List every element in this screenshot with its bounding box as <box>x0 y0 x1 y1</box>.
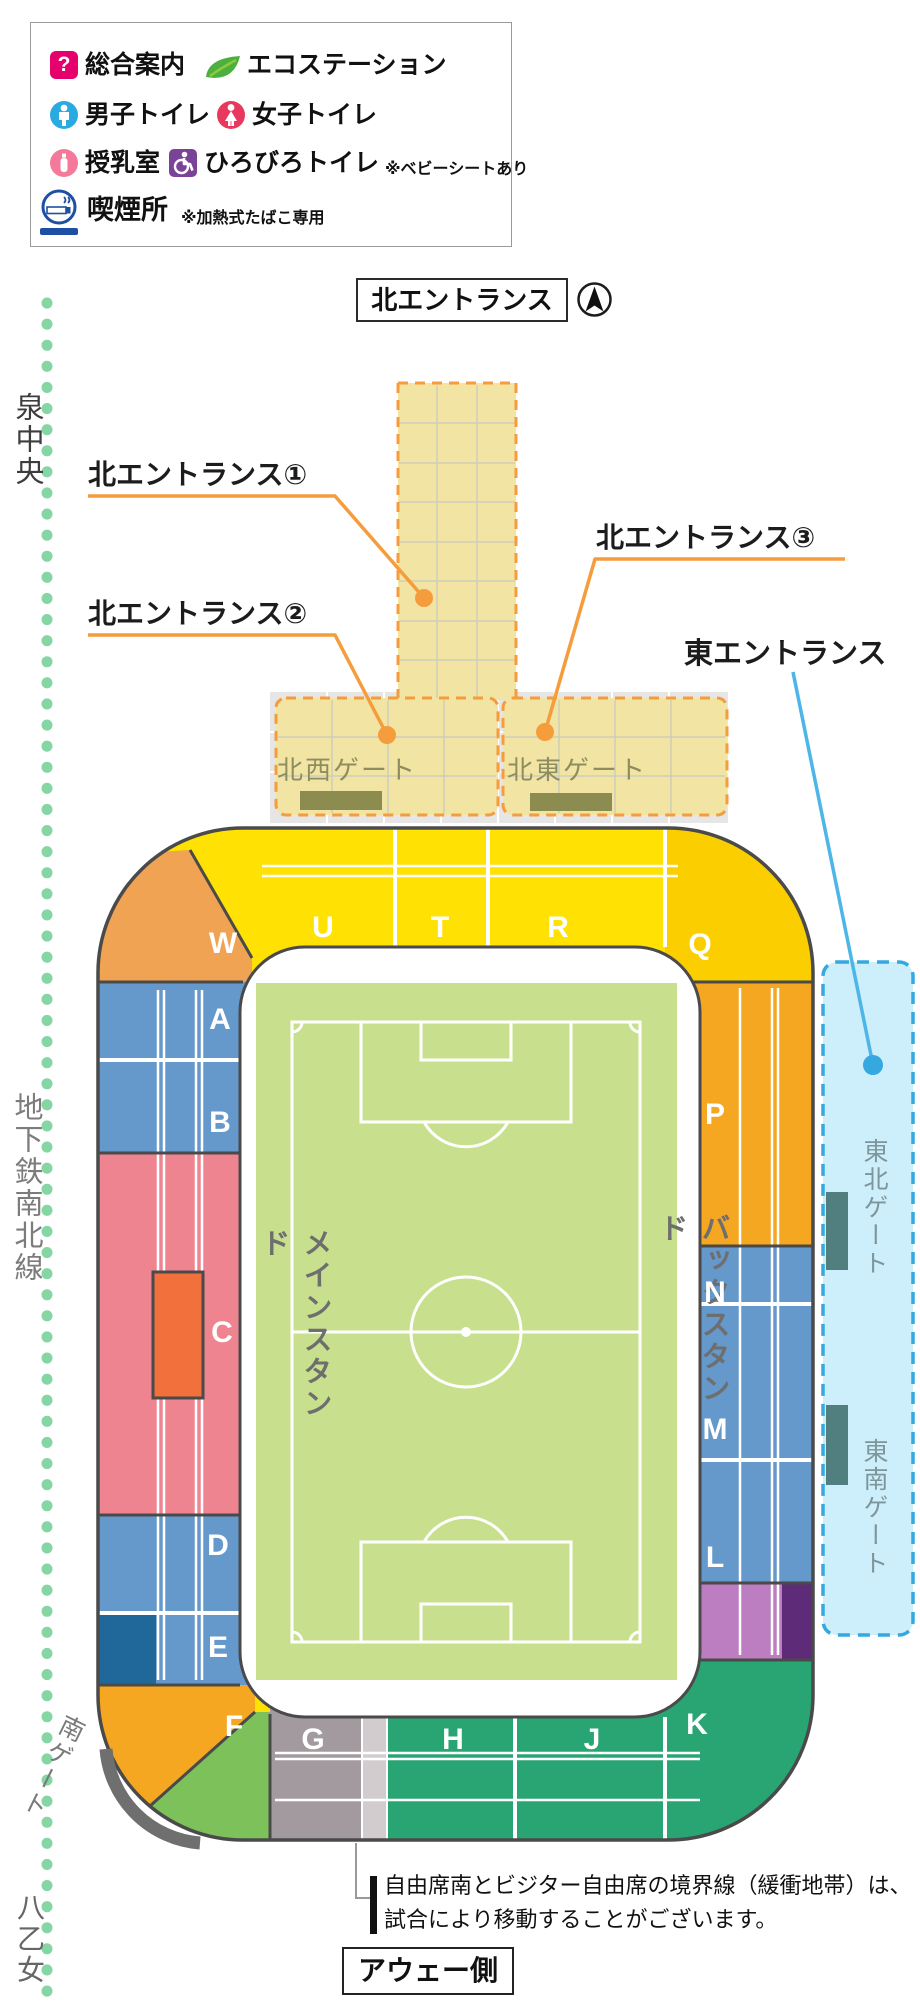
east-south-gate-bar <box>826 1405 848 1485</box>
label-north-entrance-2: 北エントランス② <box>88 592 307 632</box>
label-back-stand: バックスタンド <box>650 1213 734 1428</box>
legend-box: ? 総合案内 エコステーション 男子トイレ 女子トイレ 授乳室 ひろびろトイレ … <box>30 22 512 247</box>
section-label-q: Q <box>688 928 711 962</box>
male-icon <box>50 101 78 129</box>
label-north-entrance-3: 北エントランス③ <box>596 516 815 556</box>
legend-female-label: 女子トイレ <box>252 100 377 130</box>
female-icon <box>217 101 245 129</box>
section-purple-light <box>690 1583 782 1660</box>
northeast-gate-bar <box>530 793 612 811</box>
section-label-d: D <box>207 1529 229 1563</box>
label-north-entrance-1: 北エントランス① <box>88 453 307 493</box>
legend-male-label: 男子トイレ <box>85 100 210 130</box>
smoking-icon <box>37 187 85 237</box>
section-e-outer <box>90 1613 156 1685</box>
legend-nursing-label: 授乳室 <box>85 148 160 178</box>
label-subway-line: 地下鉄南北線 <box>5 1092 47 1302</box>
section-label-t: T <box>431 911 449 945</box>
label-main-stand: メインスタンド <box>252 1228 336 1443</box>
legend-smoking-label: 喫煙所 <box>87 195 168 225</box>
nursing-icon <box>50 149 78 177</box>
section-label-c: C <box>211 1316 233 1350</box>
note-connector <box>356 1843 377 1934</box>
east-north-gate-bar <box>826 1192 848 1270</box>
section-label-n: N <box>704 1276 726 1310</box>
vip-seats-box <box>153 1272 203 1398</box>
section-label-h: H <box>442 1723 464 1757</box>
section-label-l: L <box>706 1541 724 1575</box>
section-label-g: G <box>301 1723 324 1757</box>
leaf-icon <box>203 51 243 79</box>
north-corridor <box>398 383 516 700</box>
label-station-yaotome: 八乙女 <box>9 1893 49 2003</box>
section-label-u: U <box>312 911 334 945</box>
section-label-j: J <box>584 1723 601 1757</box>
label-east-entrance: 東エントランス <box>684 630 886 672</box>
section-label-m: M <box>703 1413 728 1447</box>
section-label-p: P <box>705 1098 725 1132</box>
label-station-izumi-chuo: 泉中央 <box>6 392 48 522</box>
away-side-box: アウェー側 <box>342 1947 514 1995</box>
section-label-e: E <box>208 1631 228 1665</box>
legend-wide-toilet-note: ※ベビーシートあり <box>385 155 528 179</box>
buffer-note-line2: 試合により移動することがございます。 <box>384 1902 777 1934</box>
label-east-north-gate: 東北ゲート <box>856 1138 892 1298</box>
buffer-note-line1: 自由席南とビジター自由席の境界線（緩衝地帯）は、 <box>384 1868 912 1900</box>
section-label-k: K <box>686 1708 708 1742</box>
north-entrance-header: 北エントランス <box>356 278 568 322</box>
wheelchair-icon <box>169 149 197 177</box>
section-label-a: A <box>209 1003 231 1037</box>
northwest-gate-bar <box>300 791 382 810</box>
section-label-w: W <box>209 927 237 961</box>
label-northwest-gate: 北西ゲート <box>277 750 417 787</box>
legend-eco-label: エコステーション <box>247 50 447 80</box>
question-icon: ? <box>50 51 78 79</box>
legend-info-label: 総合案内 <box>85 50 185 80</box>
legend-wide-toilet-label: ひろびろトイレ <box>204 148 379 178</box>
section-label-b: B <box>209 1106 231 1140</box>
legend-smoking-note: ※加熱式たばこ専用 <box>181 204 325 228</box>
compass-icon <box>576 281 613 323</box>
label-east-south-gate: 東南ゲート <box>856 1438 892 1598</box>
section-label-f: F <box>225 1710 243 1744</box>
label-northeast-gate: 北東ゲート <box>507 750 647 787</box>
section-label-r: R <box>547 911 569 945</box>
